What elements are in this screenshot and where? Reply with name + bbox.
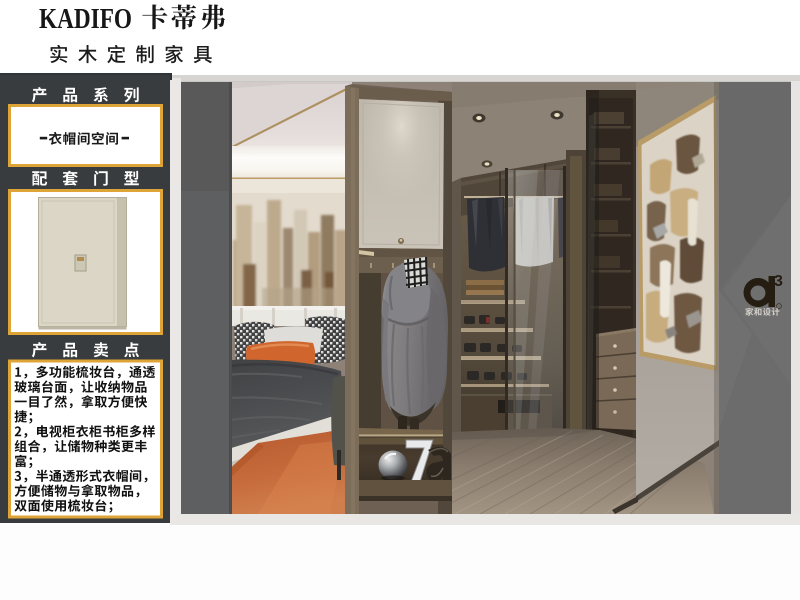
- svg-text:3: 3: [774, 273, 783, 290]
- svg-text:KADIFO: KADIFO: [39, 4, 132, 35]
